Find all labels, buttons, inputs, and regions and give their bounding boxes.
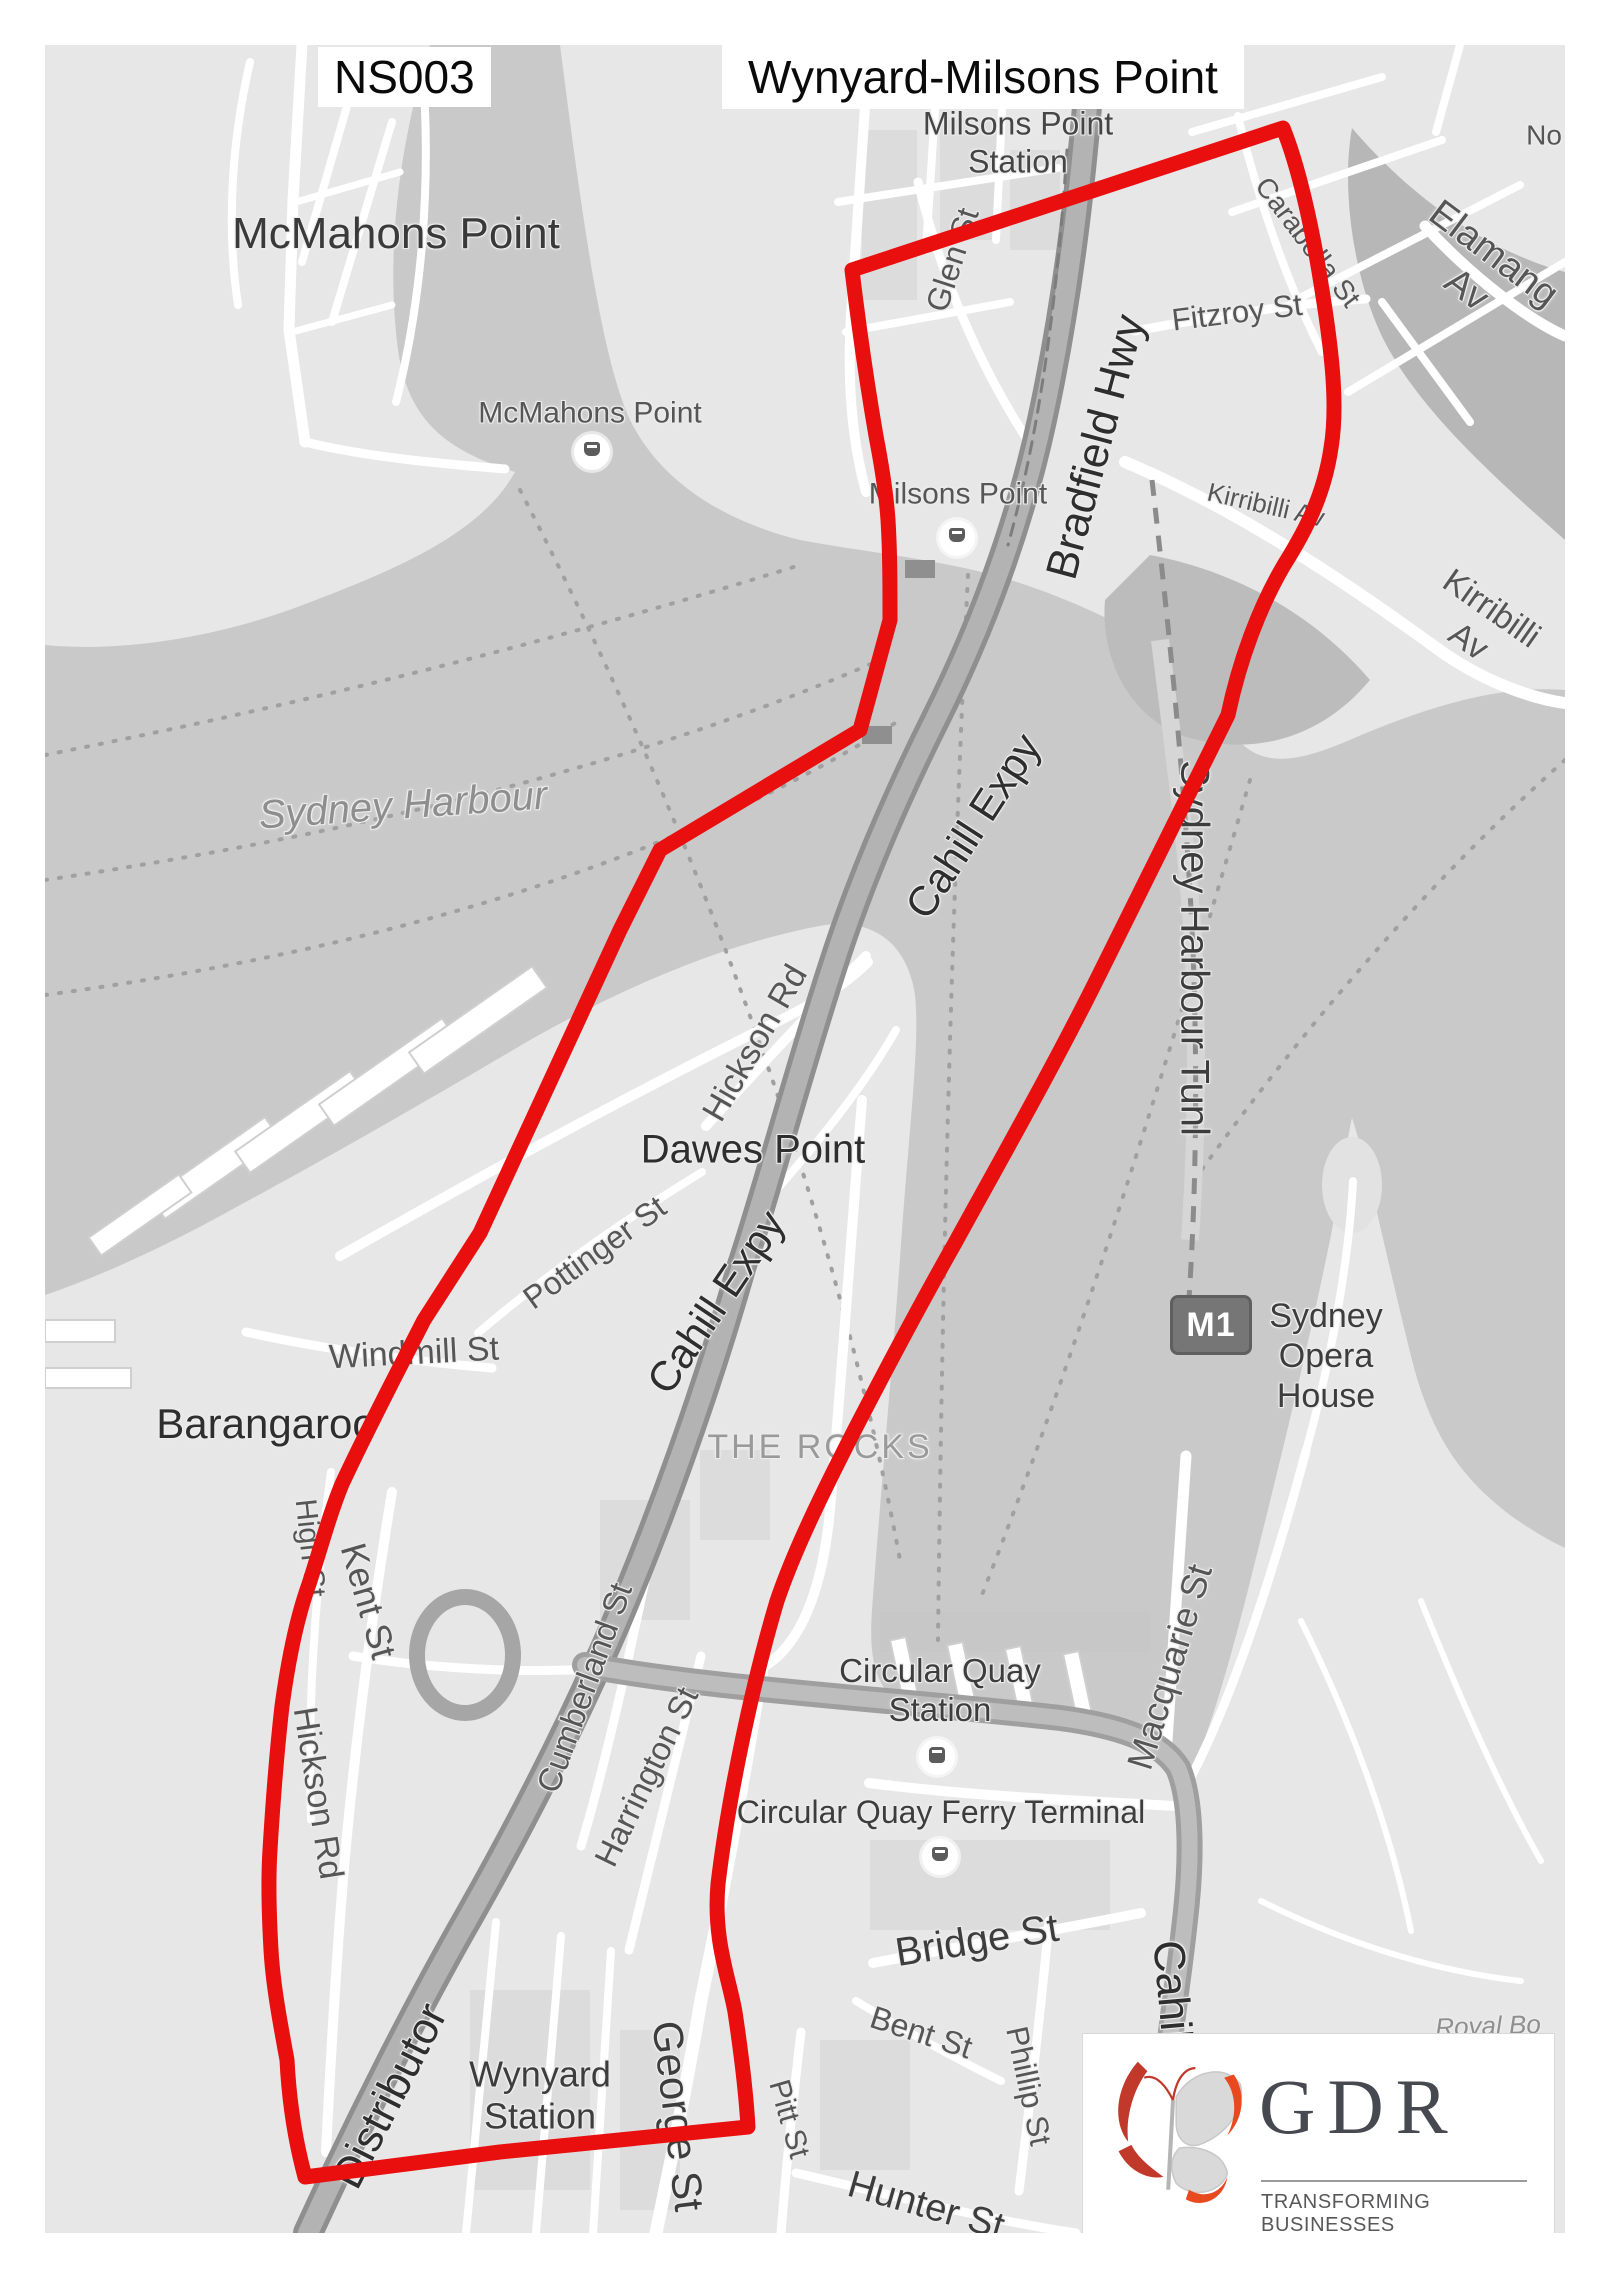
label-bradfield-hwy: Bradfield Hwy — [1036, 309, 1156, 585]
label-kent-st: Kent St — [331, 1538, 404, 1663]
label-circular-quay-station: Circular Quay Station — [839, 1652, 1041, 1730]
label-milsons-point-wharf-label: Milsons Point — [869, 476, 1047, 511]
label-glen-st: Glen St — [919, 203, 988, 316]
label-kirribilli-av-large: Kirribilli Av — [1402, 553, 1559, 696]
gdr-logo-tagline: TRANSFORMING BUSINESSES — [1261, 2191, 1554, 2233]
label-elamang-av: Elamang Av — [1393, 191, 1565, 353]
page-title: Wynyard-Milsons Point — [722, 45, 1244, 109]
label-macquarie-st: Macquarie St — [1119, 1559, 1222, 1774]
label-sydney-harbour-tunnel: Sydney Harbour Tunl — [1170, 760, 1217, 1136]
label-fitzroy-st: Fitzroy St — [1170, 287, 1304, 339]
label-pitt-st: Pitt St — [761, 2076, 817, 2163]
logo-divider — [1261, 2180, 1527, 2182]
map-labels: Milsons Point StationMcMahons PointMcMah… — [45, 45, 1565, 2233]
label-sydney-harbour: Sydney Harbour — [257, 772, 549, 839]
label-mcmahons-point-wharf: McMahons Point — [478, 395, 701, 430]
label-windmill-st: Windmill St — [328, 1329, 500, 1378]
label-kirribilli-av-small: Kirribilli Av — [1204, 477, 1327, 534]
label-north-partial: No — [1526, 118, 1562, 151]
label-phillip-st: Phillip St — [998, 2023, 1059, 2149]
label-mcmahons-point-suburb: McMahons Point — [232, 208, 560, 260]
label-cahill-expy-upper: Cahill Expy — [895, 724, 1051, 927]
label-barangaroo: Barangaroo — [156, 1399, 376, 1449]
map-canvas: Milsons Point StationMcMahons PointMcMah… — [45, 45, 1565, 2233]
map-report-page: Milsons Point StationMcMahons PointMcMah… — [0, 0, 1615, 2283]
label-harrington-st: Harrington St — [587, 1681, 707, 1873]
label-pottinger-st: Pottinger St — [516, 1189, 673, 1318]
label-dawes-point: Dawes Point — [641, 1126, 866, 1173]
label-hunter-st: Hunter St — [843, 2162, 1010, 2233]
label-circular-quay-ferry-terminal: Circular Quay Ferry Terminal — [737, 1794, 1145, 1832]
label-milsons-point-station: Milsons Point Station — [923, 105, 1113, 181]
butterfly-logo-icon — [1093, 2052, 1253, 2217]
label-the-rocks: THE ROCKS — [707, 1427, 932, 1467]
m1-route-shield: M1 — [1170, 1295, 1252, 1355]
gdr-logo-box: GDR TRANSFORMING BUSINESSES — [1082, 2033, 1555, 2233]
route-code-title: NS003 — [318, 47, 491, 107]
label-hickson-rd-upper: Hickson Rd — [694, 958, 816, 1129]
gdr-logo-text: GDR — [1259, 2062, 1460, 2152]
label-cumberland-st: Cumberland St — [529, 1578, 641, 1798]
label-sydney-opera-house: Sydney Opera House — [1269, 1296, 1382, 1416]
label-high-st: High St — [287, 1497, 332, 1599]
label-hickson-rd-lower: Hickson Rd — [285, 1704, 352, 1882]
map-viewport: Milsons Point StationMcMahons PointMcMah… — [45, 45, 1565, 2233]
label-wynyard-station: Wynyard Station — [469, 2054, 611, 2139]
label-distributor: Distributor — [321, 1995, 458, 2197]
label-bridge-st: Bridge St — [892, 1905, 1062, 1977]
label-bent-st: Bent St — [865, 1999, 976, 2067]
label-cahill-expy-lower: Cahill Expy — [637, 1201, 796, 1403]
label-george-st: George St — [642, 2018, 715, 2214]
